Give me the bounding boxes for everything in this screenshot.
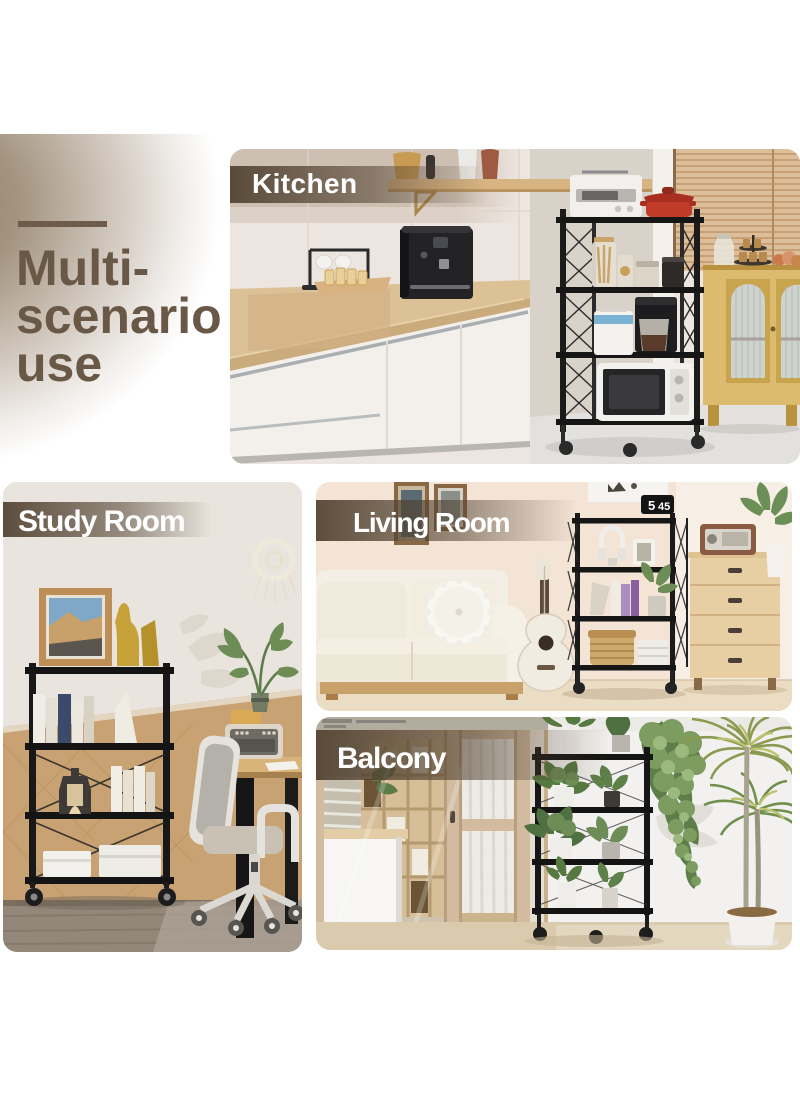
svg-text:Balcony: Balcony (337, 742, 447, 775)
svg-text:Living Room: Living Room (353, 507, 510, 538)
svg-text:Study Room: Study Room (18, 505, 185, 538)
svg-text:Kitchen: Kitchen (252, 168, 357, 199)
